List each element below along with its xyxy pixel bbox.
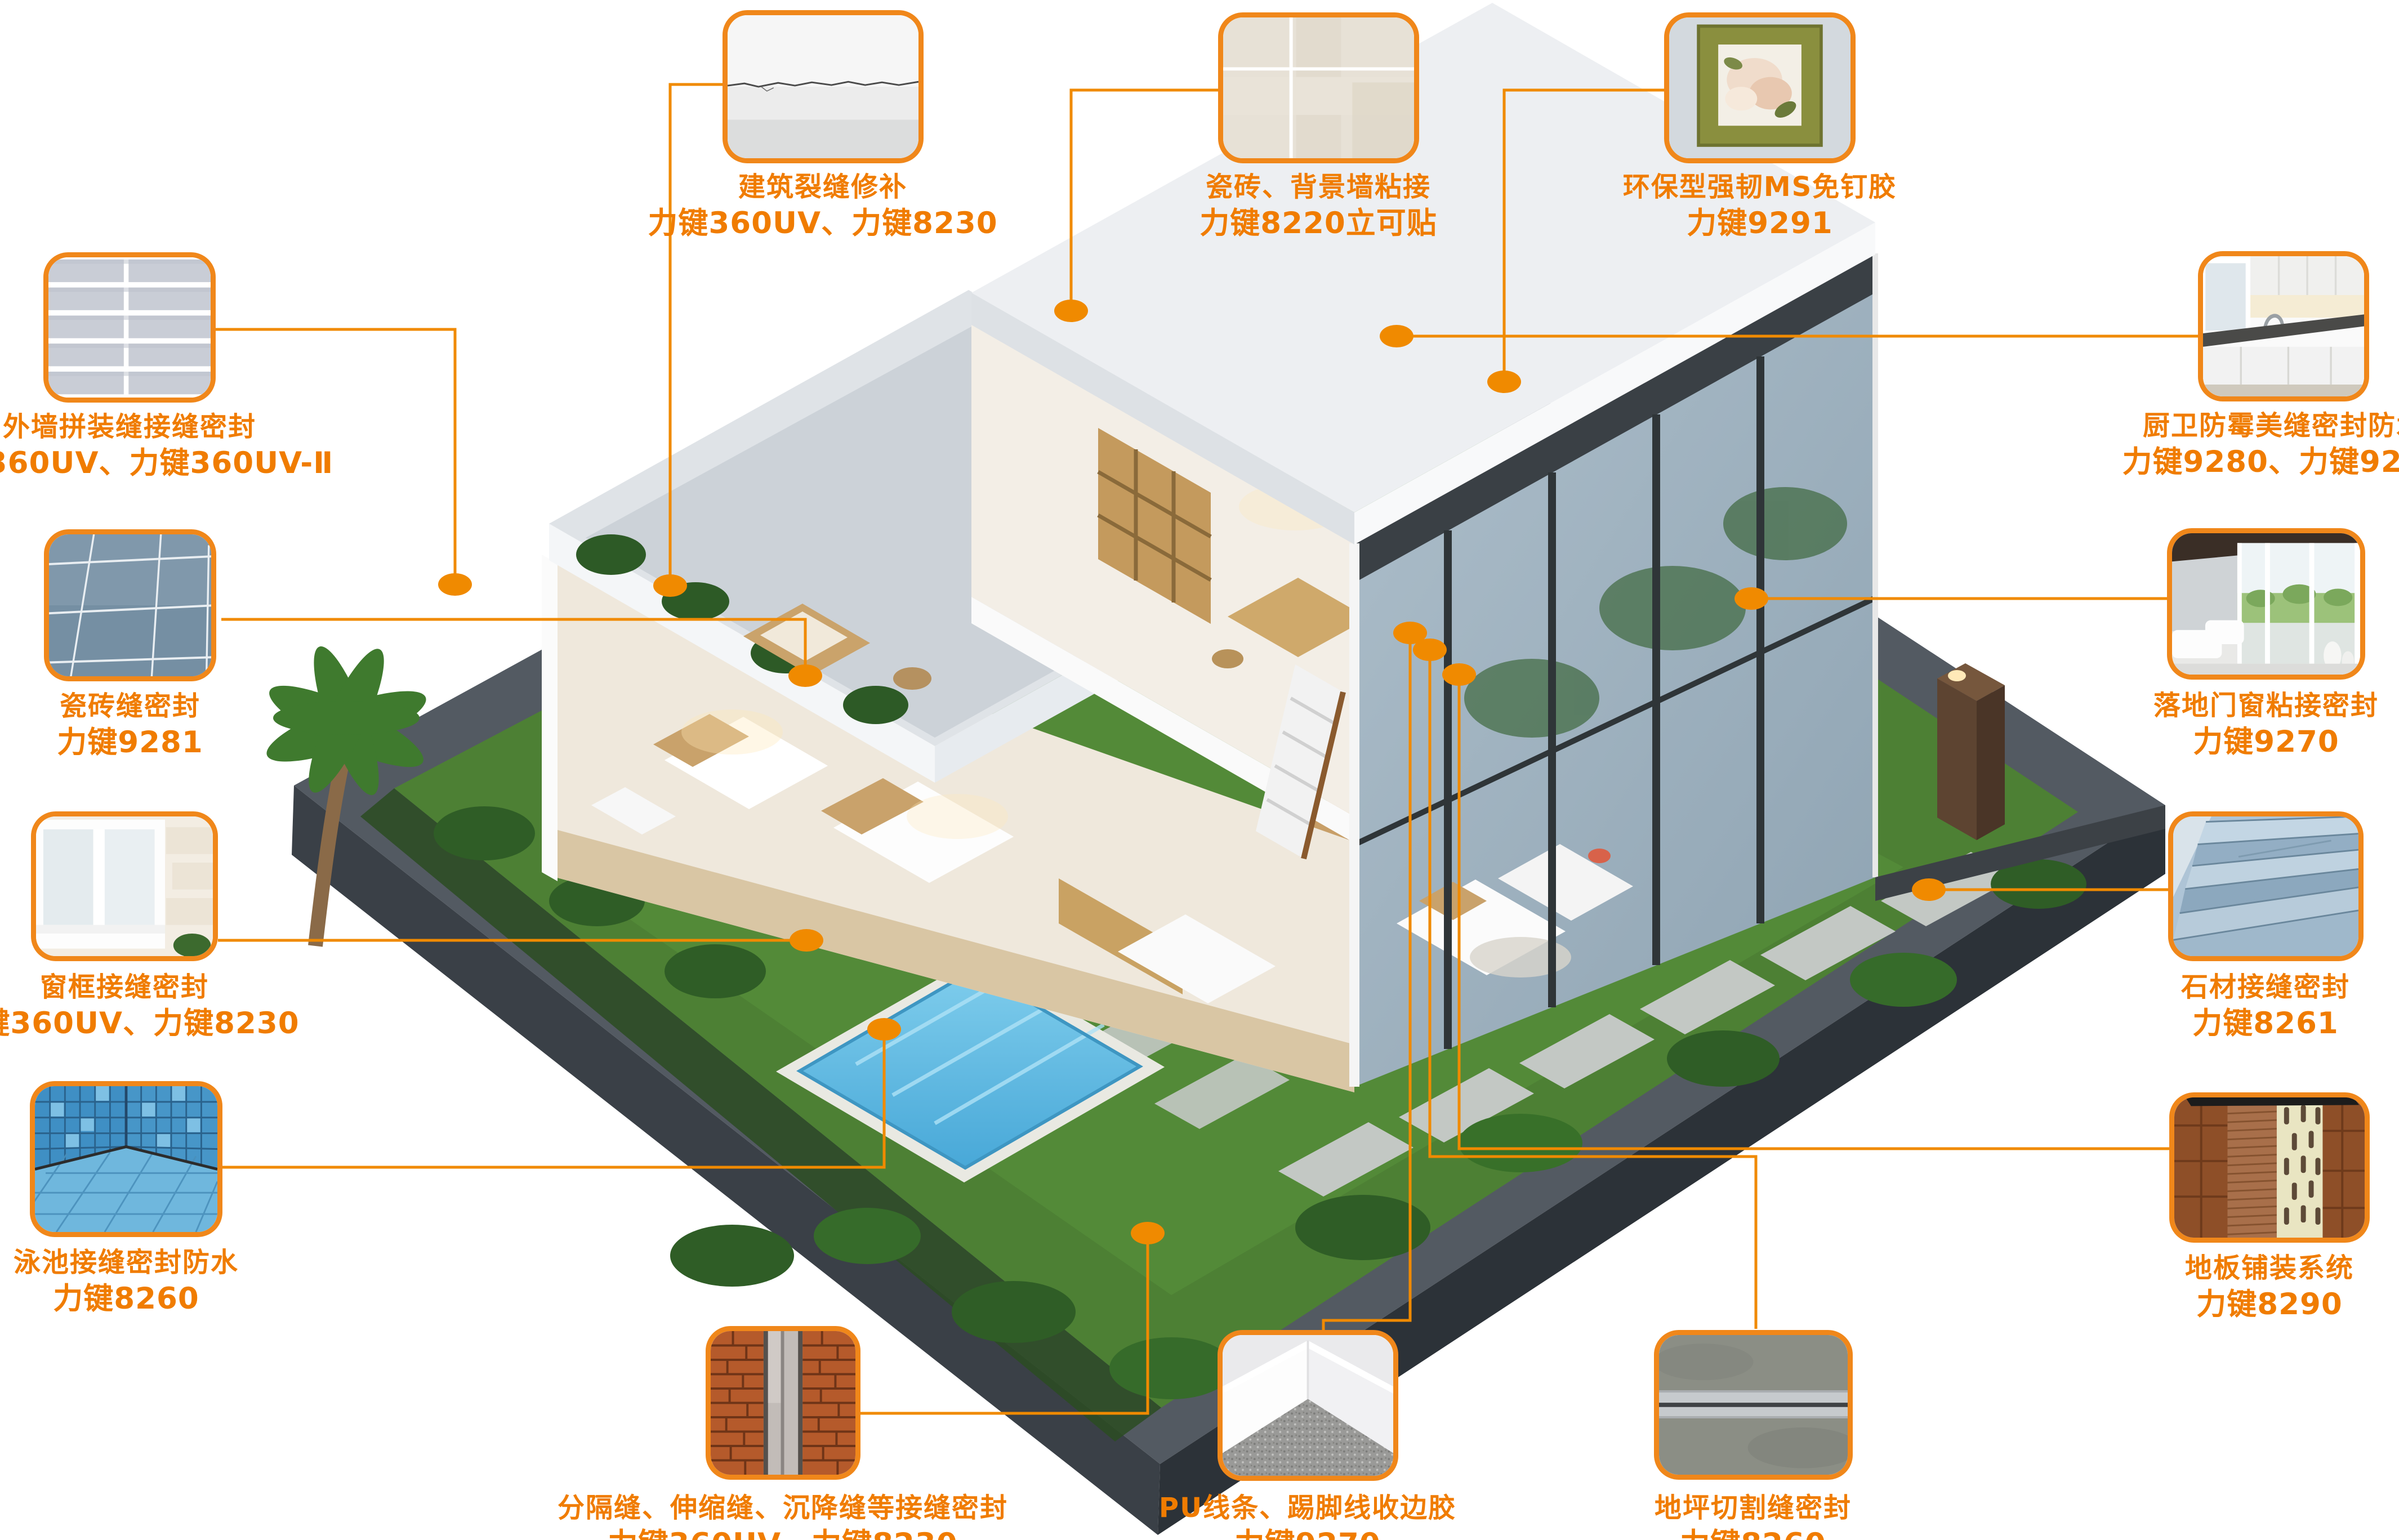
callout-title: 地板铺装系统: [1875, 1251, 2399, 1285]
callout-products: 力键360UV、力键8230: [0, 1005, 519, 1043]
callout-floor-door-bond: 落地门窗粘接密封 力键9270: [1872, 689, 2399, 761]
blue-tile-floor-image: [49, 534, 211, 676]
skirting-corner-image: [1223, 1335, 1393, 1476]
callout-title: 瓷砖缝密封: [0, 689, 524, 724]
thumbnail-kitchen-counter: [2198, 251, 2369, 401]
thumbnail-glass-door: [2167, 528, 2365, 680]
connector-expansion-joint-seal: [860, 1222, 1165, 1413]
thumbnail-blue-tile-floor: [44, 529, 216, 681]
connector-stone-joint-seal: [1912, 878, 2168, 901]
callout-title: 地坪切割缝密封: [1359, 1491, 2147, 1525]
thumbnail-wood-floor: [2169, 1092, 2370, 1243]
callout-products: 力键8260: [1359, 1525, 2147, 1540]
callout-title: 石材接缝密封: [1871, 970, 2399, 1005]
callout-products: 力键360UV、力键360UV-Ⅱ: [0, 444, 524, 483]
callout-floor-paving-system: 地板铺装系统 力键8290: [1875, 1251, 2399, 1324]
thumbnail-concrete-seam: [1654, 1330, 1853, 1480]
callout-title: 窗框接缝密封: [0, 970, 519, 1005]
infographic-poster: 建筑裂缝修补 力键360UV、力键8230 瓷砖、背景墙粘接 力键8220立可贴: [0, 0, 2399, 1540]
thumbnail-pool-mosaic: [30, 1081, 222, 1237]
connector-crack-repair: [653, 84, 724, 597]
kitchen-counter-image: [2203, 256, 2364, 396]
wall-crack-image: [728, 15, 918, 158]
thumbnail-stone-stairs: [2168, 811, 2364, 961]
callout-products: 力键9291: [1366, 204, 2154, 243]
callout-pool-seam-seal: 泳池接缝密封防水 力键8260: [0, 1246, 520, 1318]
white-window-image: [36, 816, 213, 956]
connector-tile-grout-seal: [221, 619, 822, 687]
connector-floor-door-bond: [1734, 587, 2167, 610]
brick-joint-image: [711, 1331, 855, 1475]
thumbnail-picture-frame: [1664, 12, 1856, 163]
callout-products: 力键8261: [1871, 1005, 2399, 1043]
connector-pu-trim-skirting: [1323, 622, 1427, 1347]
panel-wall-image: [48, 257, 211, 398]
connector-kitchen-bath-seal: [1380, 325, 2198, 347]
callout-stone-joint-seal: 石材接缝密封 力键8261: [1871, 970, 2399, 1043]
callout-window-frame-seal: 窗框接缝密封 力键360UV、力键8230: [0, 970, 519, 1043]
callout-tile-grout-seal: 瓷砖缝密封 力键9281: [0, 689, 524, 762]
callout-products: 力键8290: [1875, 1285, 2399, 1324]
callout-title: 环保型强韧MS免钉胶: [1366, 170, 2154, 204]
connector-floor-cut-seam: [1413, 639, 1756, 1329]
connector-window-frame-seal: [218, 929, 823, 952]
callout-floor-cut-seam: 地坪切割缝密封 力键8260: [1359, 1491, 2147, 1540]
wood-floor-image: [2174, 1097, 2365, 1238]
callout-products: 力键9281: [0, 724, 524, 762]
callout-title: 落地门窗粘接密封: [1872, 689, 2399, 723]
pool-mosaic-image: [35, 1086, 217, 1232]
callout-products: 力键8260: [0, 1280, 520, 1318]
callout-kitchen-bath-seal: 厨卫防霉美缝密封防水 力键9280、力键9281: [1889, 409, 2399, 481]
callout-title: 厨卫防霉美缝密封防水: [1889, 409, 2399, 443]
thumbnail-skirting-corner: [1218, 1330, 1398, 1481]
thumbnail-beige-tile: [1218, 12, 1419, 163]
picture-frame-image: [1669, 17, 1850, 158]
callout-title: 外墙拼装缝接缝密封: [0, 410, 524, 444]
thumbnail-wall-crack: [723, 10, 924, 163]
glass-door-image: [2172, 533, 2360, 675]
thumbnail-brick-joint: [706, 1326, 860, 1480]
callout-products: 力键9280、力键9281: [1889, 443, 2399, 481]
callout-title: 泳池接缝密封防水: [0, 1246, 520, 1280]
callout-products: 力键9270: [1872, 723, 2399, 761]
thumbnail-panel-wall: [43, 252, 216, 403]
thumbnail-white-window: [31, 811, 218, 961]
concrete-seam-image: [1659, 1335, 1848, 1475]
callout-exterior-panel-joint: 外墙拼装缝接缝密封 力键360UV、力键360UV-Ⅱ: [0, 410, 524, 483]
callout-ms-nail-free-glue: 环保型强韧MS免钉胶 力键9291: [1366, 170, 2154, 243]
stone-stairs-image: [2173, 816, 2358, 956]
beige-tile-image: [1223, 17, 1414, 158]
